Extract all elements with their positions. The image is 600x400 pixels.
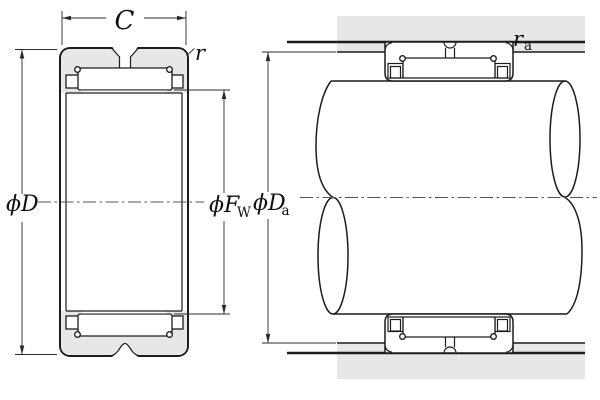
shaft-end-curve-right bbox=[565, 198, 582, 315]
label-fillet-ra-sub: a bbox=[524, 38, 532, 54]
dimension-width-C: C bbox=[62, 6, 186, 45]
label-chamfer-r: r bbox=[195, 41, 207, 65]
bore-clear-bottom bbox=[81, 312, 167, 314]
housing-shoulder-top-left bbox=[337, 42, 385, 52]
shaft-end-curve-left bbox=[316, 81, 333, 198]
label-outer-diameter: ϕD bbox=[6, 192, 39, 217]
shaft-end-ellipse-right bbox=[550, 81, 580, 197]
arrow-down bbox=[222, 305, 227, 314]
figure-canvas: C r ϕD ϕF W bbox=[0, 0, 600, 400]
mounted-bearing-top bbox=[385, 42, 513, 81]
label-width-C: C bbox=[115, 6, 135, 36]
cage-pin-bottom-left bbox=[75, 332, 81, 338]
shaft-end-ellipse-left bbox=[318, 198, 348, 315]
label-raceway-diameter-sub: W bbox=[237, 205, 251, 221]
needle-roller bbox=[403, 58, 495, 78]
housing-top bbox=[337, 16, 585, 42]
cage-pin-top-left bbox=[75, 67, 81, 73]
cage-pin-right bbox=[491, 334, 497, 340]
arrow-down bbox=[20, 346, 25, 355]
mounted-view: r a bbox=[287, 16, 597, 379]
chamfer-annotation: r bbox=[187, 41, 207, 65]
cage-pin-left bbox=[400, 334, 406, 340]
arrow-up bbox=[266, 52, 271, 61]
cage-pin-right bbox=[491, 56, 497, 62]
cage-pin-top-right bbox=[167, 67, 173, 73]
cross-section-view: C r ϕD ϕF W bbox=[6, 6, 336, 358]
label-abutment-diameter-sub: a bbox=[282, 203, 290, 219]
mounted-bearing-bottom bbox=[385, 314, 513, 353]
arrow-left bbox=[62, 16, 71, 21]
arrow-down bbox=[266, 334, 271, 343]
needle-roller bbox=[403, 317, 495, 337]
bearing-dimension-drawing: C r ϕD ϕF W bbox=[0, 0, 600, 400]
chamfer-leader bbox=[187, 49, 195, 56]
arrow-up bbox=[222, 90, 227, 99]
needle-roller-bottom bbox=[78, 314, 172, 336]
cage-pin-left bbox=[400, 56, 406, 62]
housing-shoulder-bottom-left bbox=[337, 343, 385, 353]
bore-clear-top bbox=[81, 91, 167, 93]
arrow-up bbox=[20, 50, 25, 59]
arrow-right bbox=[177, 16, 186, 21]
housing-shoulder-bottom-right bbox=[513, 343, 585, 353]
label-raceway-diameter: ϕF bbox=[209, 193, 240, 218]
housing-bottom bbox=[337, 353, 585, 379]
cage-pin-bottom-right bbox=[167, 332, 173, 338]
needle-roller-top bbox=[78, 68, 172, 90]
